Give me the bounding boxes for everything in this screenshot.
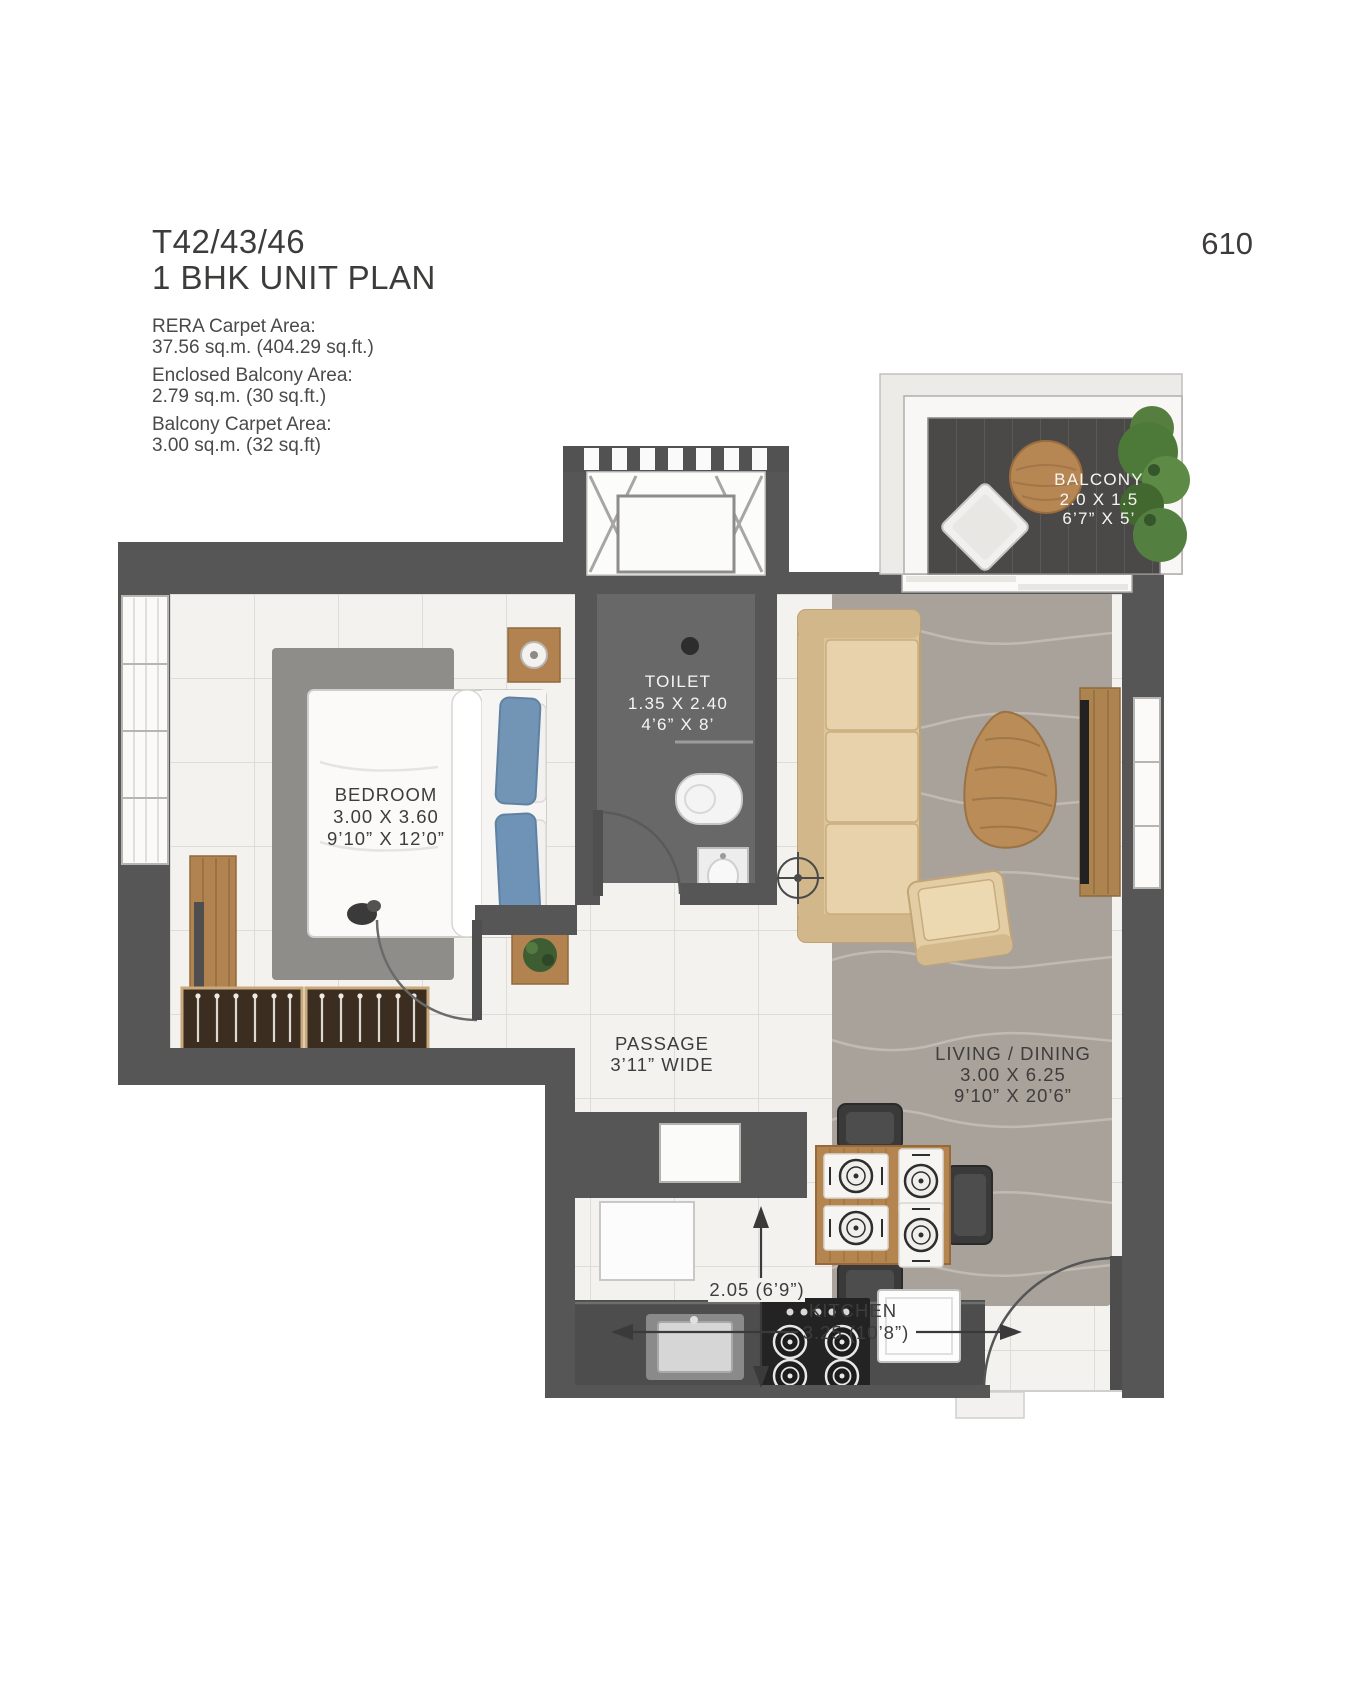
- basin-tap: [720, 853, 726, 859]
- kitchen-depth-label: 2.05 (6’9”): [709, 1279, 804, 1300]
- toilet-dim-ft: 4’6” X 8’: [641, 715, 714, 734]
- sofa-cushion: [826, 824, 918, 914]
- kitchen-label: KITCHEN: [809, 1300, 897, 1321]
- bedroom-top-wall: [118, 542, 575, 594]
- blue-pillow: [495, 697, 540, 805]
- tv-unit: [1080, 688, 1120, 896]
- armchair: [907, 870, 1014, 967]
- door-leaf: [472, 920, 482, 1020]
- passage-width: 3’11” WIDE: [610, 1054, 713, 1075]
- balcony-dim-ft: 6’7” X 5’: [1062, 509, 1135, 528]
- bedroom-dim-ft: 9’10” X 12’0”: [327, 828, 445, 849]
- sofa-cushion: [826, 732, 918, 822]
- bedroom-door-wall: [475, 905, 577, 935]
- living-window: [1134, 698, 1160, 888]
- wardrobe: [182, 988, 428, 1050]
- sofa-armrest: [798, 610, 920, 638]
- bedside-table-top: [508, 628, 560, 682]
- blue-pillow: [495, 813, 540, 921]
- floor-plan-drawing: BEDROOM 3.00 X 3.60 9’10” X 12’0” TOILET…: [0, 0, 1369, 1688]
- faucet: [690, 1316, 698, 1324]
- potted-plant: [523, 938, 557, 972]
- throw-on-bed: [367, 900, 381, 912]
- shower-drain: [681, 637, 699, 655]
- toilet-floor: [597, 594, 755, 883]
- kitchen-appliance: [600, 1202, 694, 1280]
- sofa: [798, 610, 920, 942]
- door-leaf: [1110, 1256, 1122, 1390]
- toilet-bottom-wall: [680, 883, 777, 905]
- living-dining-dim-m: 3.00 X 6.25: [960, 1064, 1066, 1085]
- wardrobe-section: [306, 988, 428, 1050]
- balcony-sliding-door: [902, 574, 1132, 592]
- kitchen-sink: [646, 1314, 744, 1380]
- wc: [676, 774, 742, 824]
- sofa-back: [798, 636, 824, 916]
- sofa-cushion: [826, 640, 918, 730]
- bedroom-label: BEDROOM: [335, 784, 438, 805]
- chair-seat: [846, 1112, 894, 1144]
- table-lamp-center: [530, 651, 538, 659]
- chair-seat: [954, 1174, 986, 1236]
- toilet-label: TOILET: [645, 672, 711, 691]
- passage-label: PASSAGE: [615, 1033, 709, 1054]
- bedroom-window: [122, 596, 168, 864]
- duvet-roll: [452, 690, 482, 937]
- bottom-left-wall: [118, 1048, 575, 1085]
- kitchen-bottom-wall: [545, 1385, 990, 1398]
- kitchen-left-wall: [545, 1048, 575, 1398]
- utility-niche: [660, 1124, 740, 1182]
- plant-leaf: [526, 942, 538, 954]
- toilet-dim-m: 1.35 X 2.40: [628, 694, 728, 713]
- plant-leaf: [542, 954, 554, 966]
- bedroom-dim-m: 3.00 X 3.60: [333, 806, 439, 827]
- right-exterior-wall: [1122, 572, 1164, 1398]
- brochure-page: T42/43/46 1 BHK UNIT PLAN 610 RERA Carpe…: [0, 0, 1369, 1688]
- living-dining-label: LIVING / DINING: [935, 1043, 1091, 1064]
- tv-screen: [1080, 700, 1089, 884]
- armchair-cushion: [918, 879, 1000, 941]
- balcony-label: BALCONY: [1054, 470, 1144, 489]
- toilet-right-wall: [755, 572, 777, 905]
- door-leaf: [593, 810, 603, 896]
- kitchen-width-label: 3.25 (10’8”): [803, 1322, 910, 1343]
- sofa-armrest: [798, 914, 920, 942]
- living-dining-dim-ft: 9’10” X 20’6”: [954, 1085, 1072, 1106]
- sink-basin: [658, 1322, 732, 1372]
- lift-car: [618, 496, 734, 572]
- balcony-dim-m: 2.0 X 1.5: [1060, 490, 1139, 509]
- lift-shaft: [563, 446, 789, 575]
